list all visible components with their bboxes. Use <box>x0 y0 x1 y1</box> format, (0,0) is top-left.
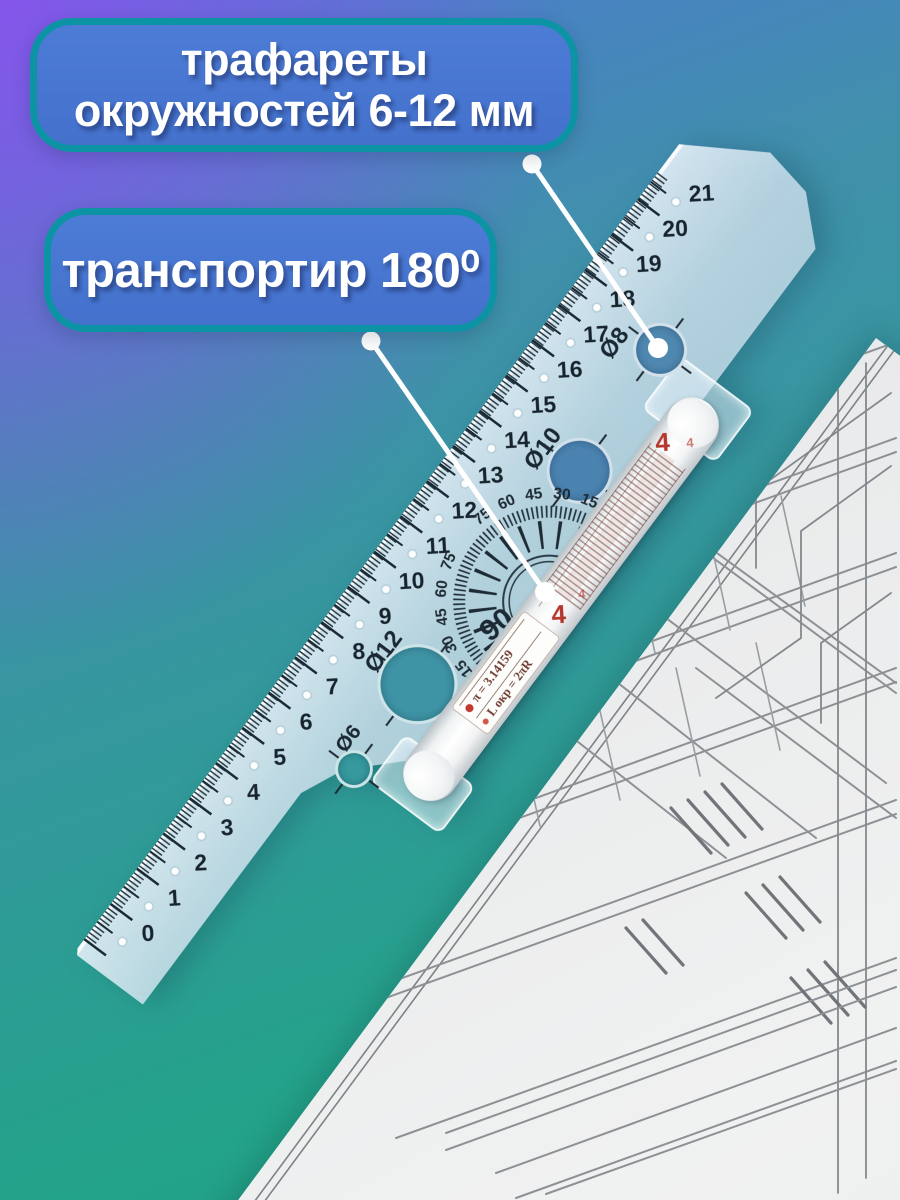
protractor-arc-label: 75 <box>438 550 460 573</box>
ruler-number: 7 <box>325 673 339 701</box>
red-dot-icon <box>481 717 489 725</box>
ruler-number: 21 <box>688 179 715 207</box>
callout-circle-templates: трафареты окружностей 6-12 мм <box>30 18 578 152</box>
ruler-number: 16 <box>556 356 583 384</box>
protractor-arc-label: 45 <box>524 485 544 504</box>
callout-protractor: транспортир 180⁰ <box>44 208 497 332</box>
red-dot-icon <box>464 702 475 713</box>
product-banner: 0123456789101112131415161718192021 Ø6 Ø1… <box>0 0 900 1200</box>
roller-mark: 4 <box>578 586 586 601</box>
protractor-arc-label: 45 <box>433 607 452 627</box>
protractor-arc-label: 75 <box>470 504 494 528</box>
protractor-arc-label: 30 <box>552 485 571 504</box>
ruler-number: 19 <box>635 250 662 278</box>
ruler-number: 20 <box>662 215 689 243</box>
roller-mark: 4 <box>654 427 670 459</box>
ruler-number: 0 <box>141 920 155 948</box>
roller-mark: 4 <box>551 599 567 631</box>
ruler-number: 3 <box>220 814 234 842</box>
protractor-arc-label: 30 <box>439 633 461 656</box>
ruler-number: 5 <box>273 743 287 771</box>
ruler-number: 1 <box>167 884 181 912</box>
ruler-number: 18 <box>609 285 636 313</box>
callout-circle-templates-text: трафареты окружностей 6-12 мм <box>55 34 553 137</box>
protractor-arc-label: 60 <box>432 579 451 598</box>
roller-mark: 4 <box>686 435 694 450</box>
leader-dot <box>523 155 542 174</box>
ruler-number: 4 <box>246 779 260 807</box>
callout-protractor-text: транспортир 180⁰ <box>62 242 480 299</box>
protractor-arc-label: 60 <box>495 491 518 513</box>
leader-dot <box>362 332 381 351</box>
ruler-number: 6 <box>299 708 313 736</box>
ruler-number: 2 <box>194 849 208 877</box>
